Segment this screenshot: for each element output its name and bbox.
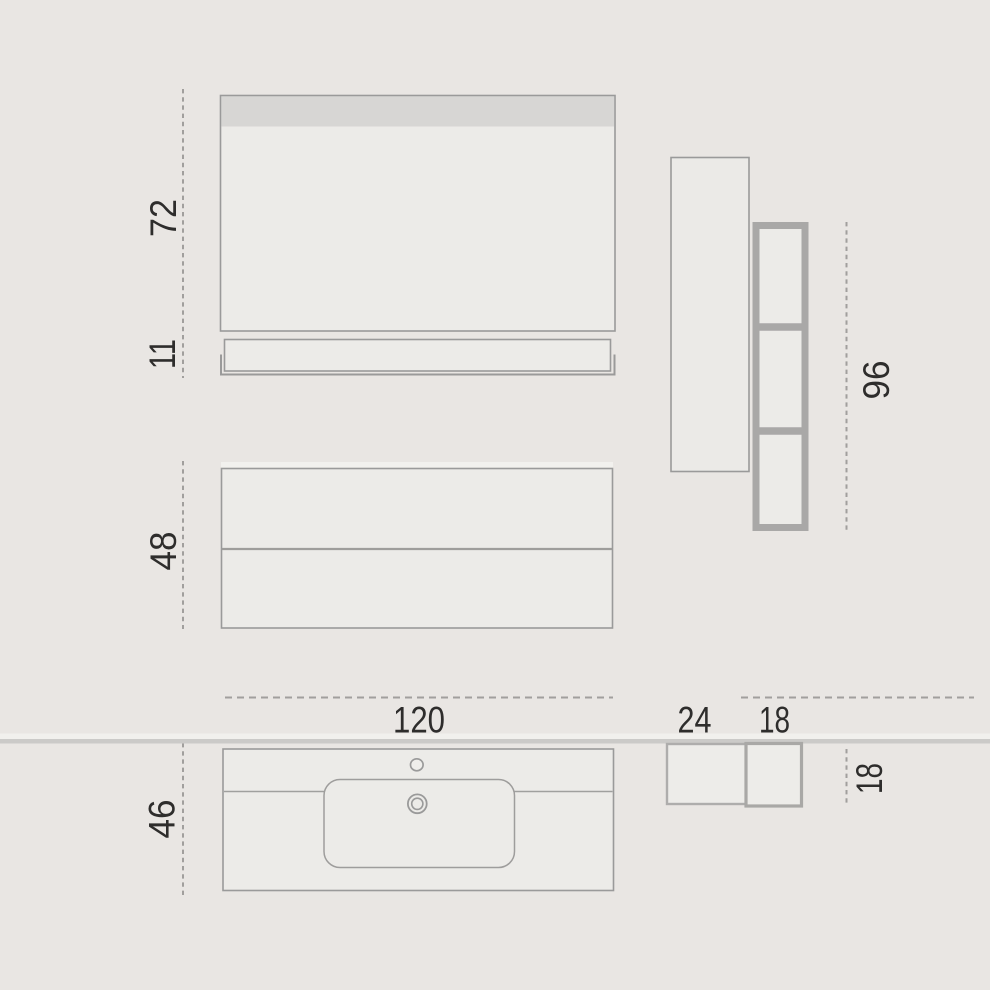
svg-text:48: 48 [143, 532, 184, 571]
svg-text:46: 46 [142, 800, 183, 839]
svg-text:72: 72 [143, 199, 184, 237]
svg-text:18: 18 [849, 763, 890, 794]
svg-text:11: 11 [142, 339, 183, 369]
svg-text:96: 96 [856, 361, 897, 400]
